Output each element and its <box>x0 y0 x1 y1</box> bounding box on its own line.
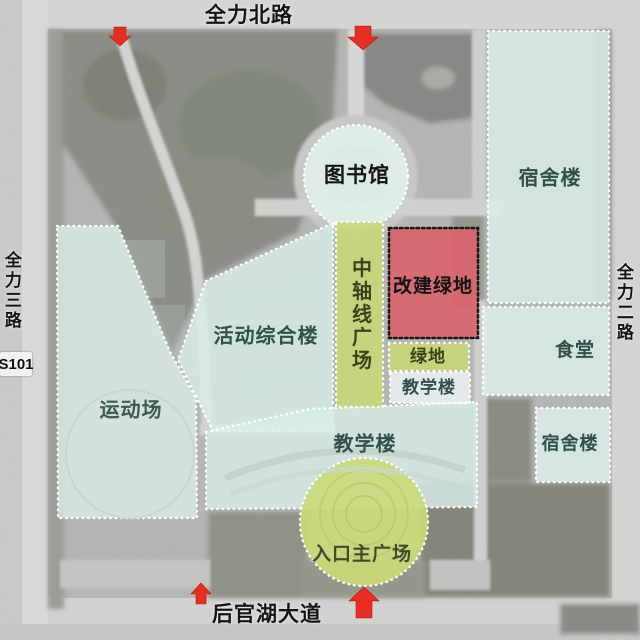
campus-map: 全力北路 后官湖大道 全力三路 全力二路 S101 图书馆 宿舍楼 中轴线广场 … <box>0 0 640 640</box>
rebuilt-green-zone <box>389 228 478 338</box>
library-zone <box>304 125 408 229</box>
dorm-right-zone <box>488 31 609 303</box>
central-axis-plaza-zone <box>336 222 383 407</box>
dorm-small-zone <box>536 408 610 482</box>
entrance-plaza-zone <box>300 458 428 586</box>
satellite-basemap <box>0 0 640 640</box>
canteen-zone <box>483 307 609 395</box>
highway-badge: S101 <box>0 352 32 376</box>
green-strip-zone <box>389 343 469 371</box>
teaching-small-zone <box>390 372 470 403</box>
